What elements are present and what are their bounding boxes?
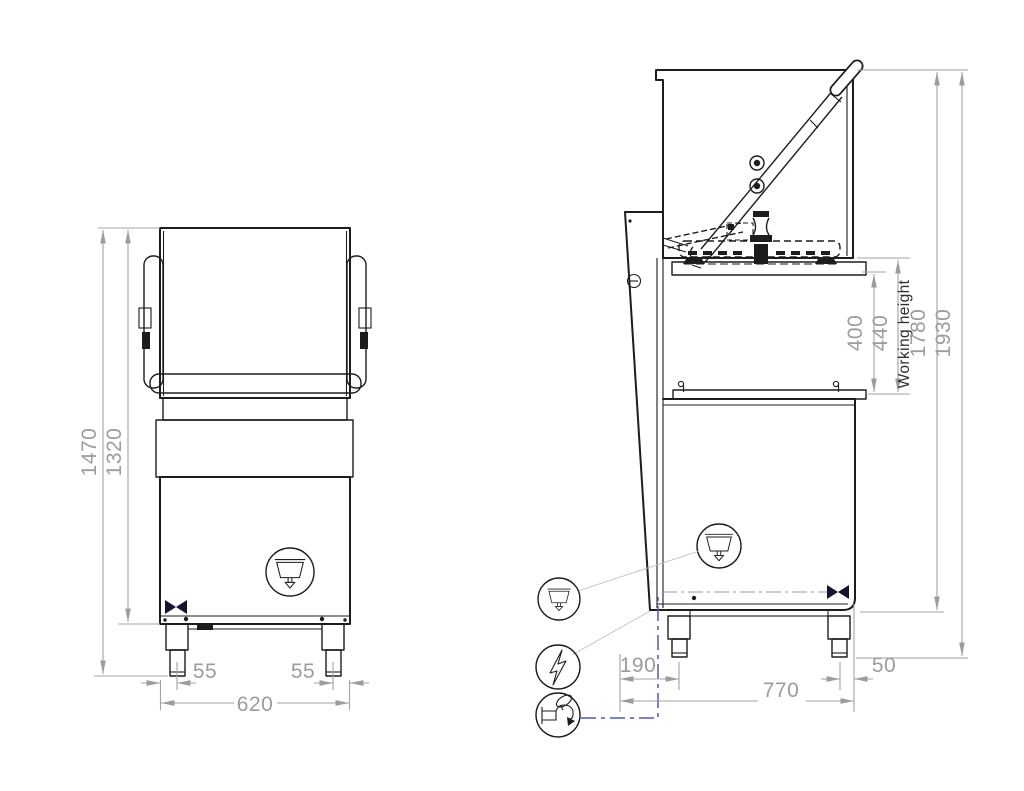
- drain-connection-icon: [538, 578, 580, 620]
- dishwasher-dimension-drawing: 1470 1320 55 55 620: [0, 0, 1024, 791]
- drain-valve-icon: [165, 600, 187, 614]
- water-connection-icon: [536, 693, 580, 737]
- dim-height-hood-closed: 1780: [907, 309, 930, 358]
- side-front-column: [625, 212, 688, 610]
- drain-symbol-icon: [266, 548, 314, 596]
- electrical-connection-icon: [536, 645, 580, 689]
- handle-pivot-right: [359, 308, 371, 328]
- front-cabinet: [160, 477, 350, 624]
- dim-overall-height: 1470: [78, 428, 101, 477]
- drain-valve-icon-side: [827, 585, 849, 599]
- front-hood-handle: [139, 256, 371, 393]
- side-dim-depths: 190 770 50: [620, 604, 896, 712]
- rinse-head: [750, 211, 772, 264]
- wash-arm-detail: [666, 211, 840, 264]
- dim-water-inlet-offset: 190: [620, 654, 657, 677]
- side-feet: [668, 616, 850, 657]
- dim-body-height: 1320: [103, 428, 126, 477]
- front-hood: [160, 228, 350, 398]
- dim-opening-min: 400: [844, 315, 867, 352]
- dim-foot-inset-right: 55: [291, 660, 315, 683]
- front-dim-widths: 55 55 620: [141, 660, 369, 716]
- front-mid-band: [163, 398, 347, 420]
- dim-foot-inset-left: 55: [193, 660, 217, 683]
- side-dim-heights: 400 440 Working height 1780 1930: [844, 70, 968, 658]
- dim-opening-max: 440: [869, 315, 892, 352]
- side-cabinet: [650, 399, 855, 616]
- drain-symbol-icon-side: [697, 524, 741, 568]
- dim-rear-foot-offset: 50: [872, 654, 896, 677]
- dim-overall-depth: 770: [763, 679, 800, 702]
- side-view: 400 440 Working height 1780 1930 190 770…: [536, 66, 968, 737]
- connection-symbols: [536, 551, 699, 737]
- drawing-canvas: 1470 1320 55 55 620: [0, 0, 1024, 791]
- dim-overall-width: 620: [237, 693, 274, 716]
- front-tank: [156, 420, 353, 477]
- dim-height-hood-open: 1930: [932, 309, 955, 358]
- front-view: 1470 1320 55 55 620: [78, 228, 371, 716]
- tank-rim: [673, 381, 866, 399]
- front-dim-heights: 1470 1320: [78, 228, 168, 676]
- handle-pivot-left: [139, 308, 151, 328]
